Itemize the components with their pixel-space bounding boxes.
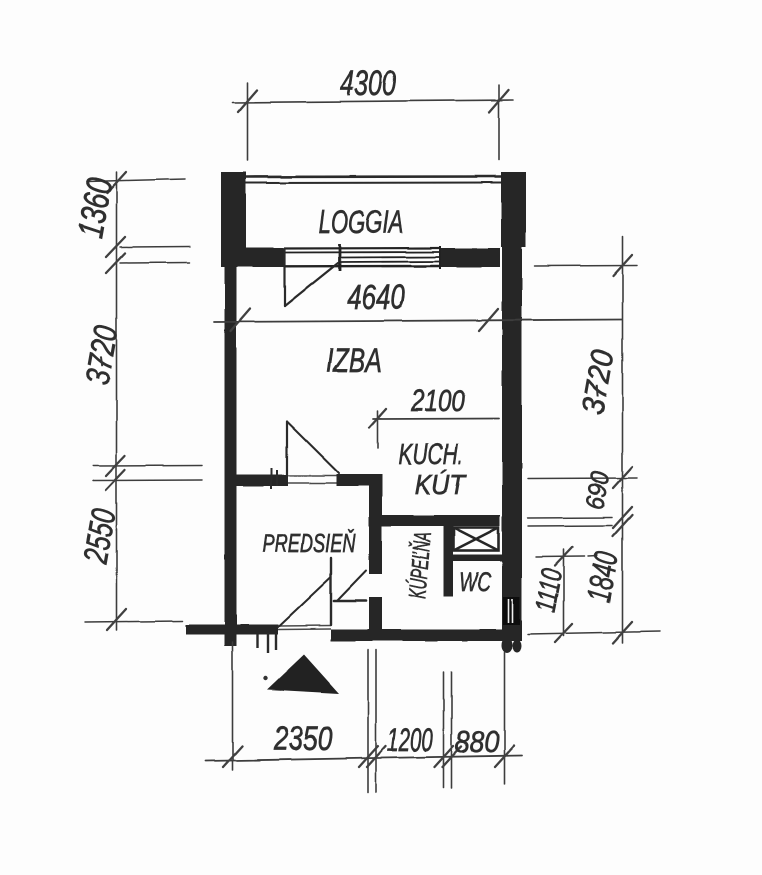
svg-text:3720: 3720 bbox=[576, 347, 621, 417]
svg-text:1840: 1840 bbox=[581, 549, 627, 605]
svg-text:WC: WC bbox=[459, 567, 491, 597]
svg-text:880: 880 bbox=[455, 725, 499, 759]
svg-text:4640: 4640 bbox=[347, 277, 405, 317]
svg-text:1360: 1360 bbox=[69, 174, 120, 240]
svg-text:KUCH.: KUCH. bbox=[399, 439, 464, 471]
svg-text:690: 690 bbox=[581, 469, 616, 512]
svg-text:KÚT: KÚT bbox=[415, 469, 467, 501]
svg-text:4300: 4300 bbox=[340, 64, 396, 103]
svg-text:PREDSIEŇ: PREDSIEŇ bbox=[262, 529, 356, 558]
svg-text:KÚPEĽŇA: KÚPEĽŇA bbox=[403, 531, 437, 600]
svg-text:1200: 1200 bbox=[387, 722, 433, 758]
svg-text:LOGGIA: LOGGIA bbox=[319, 204, 404, 240]
svg-text:IZBA: IZBA bbox=[326, 342, 382, 380]
svg-text:2100: 2100 bbox=[410, 383, 465, 418]
svg-text:2350: 2350 bbox=[273, 720, 333, 758]
svg-text:3720: 3720 bbox=[78, 323, 126, 388]
